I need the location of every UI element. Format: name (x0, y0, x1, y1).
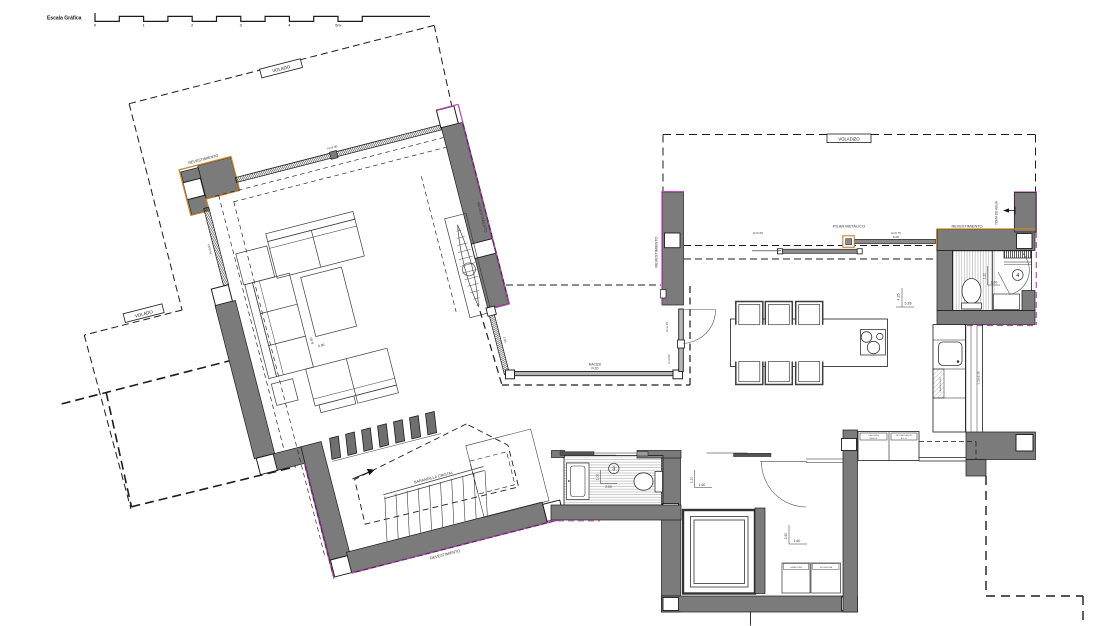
svg-text:LAVADORA: LAVADORA (790, 566, 802, 569)
svg-text:H=2.35: H=2.35 (665, 322, 669, 332)
svg-text:LAVAVAJILLAS: LAVAVAJILLAS (939, 377, 942, 392)
svg-text:1.60: 1.60 (794, 539, 801, 543)
svg-text:REVESTIMIENTO: REVESTIMIENTO (655, 236, 659, 267)
svg-text:1.60: 1.60 (699, 483, 706, 487)
svg-text:FIJO: FIJO (893, 235, 900, 239)
svg-text:5.28: 5.28 (905, 302, 912, 306)
svg-text:1.10: 1.10 (690, 477, 694, 484)
svg-text:4.25: 4.25 (897, 294, 901, 301)
svg-text:GASOIL: GASOIL (869, 437, 878, 440)
svg-text:FIJO: FIJO (592, 367, 599, 371)
svg-text:H=0.25: H=0.25 (753, 231, 763, 235)
svg-text:2.90: 2.90 (784, 533, 788, 540)
svg-text:TOMA DE AGUA: TOMA DE AGUA (995, 200, 999, 225)
svg-text:Escala Gráfica: Escala Gráfica (47, 16, 82, 22)
svg-text:PILAR METÁLICO: PILAR METÁLICO (833, 224, 865, 229)
svg-text:REVESTIMIENTO: REVESTIMIENTO (952, 225, 983, 229)
svg-text:1.60: 1.60 (991, 280, 998, 284)
svg-text:1.00: 1.00 (596, 474, 600, 481)
svg-text:VOLADIZO: VOLADIZO (838, 137, 860, 142)
svg-text:A.C.S.: A.C.S. (901, 437, 908, 440)
svg-text:1.33x2.35: 1.33x2.35 (977, 371, 981, 385)
svg-text:CALDERA: CALDERA (868, 434, 879, 437)
svg-text:2.00: 2.00 (605, 485, 612, 489)
svg-text:3: 3 (612, 467, 615, 473)
svg-text:SECADORA: SECADORA (820, 566, 833, 569)
svg-text:1.20: 1.20 (983, 273, 987, 280)
svg-text:H=0.95: H=0.95 (667, 354, 671, 364)
svg-text:5m: 5m (335, 23, 341, 28)
svg-text:ACUMULADOR: ACUMULADOR (896, 434, 912, 437)
svg-text:4: 4 (1016, 273, 1019, 279)
